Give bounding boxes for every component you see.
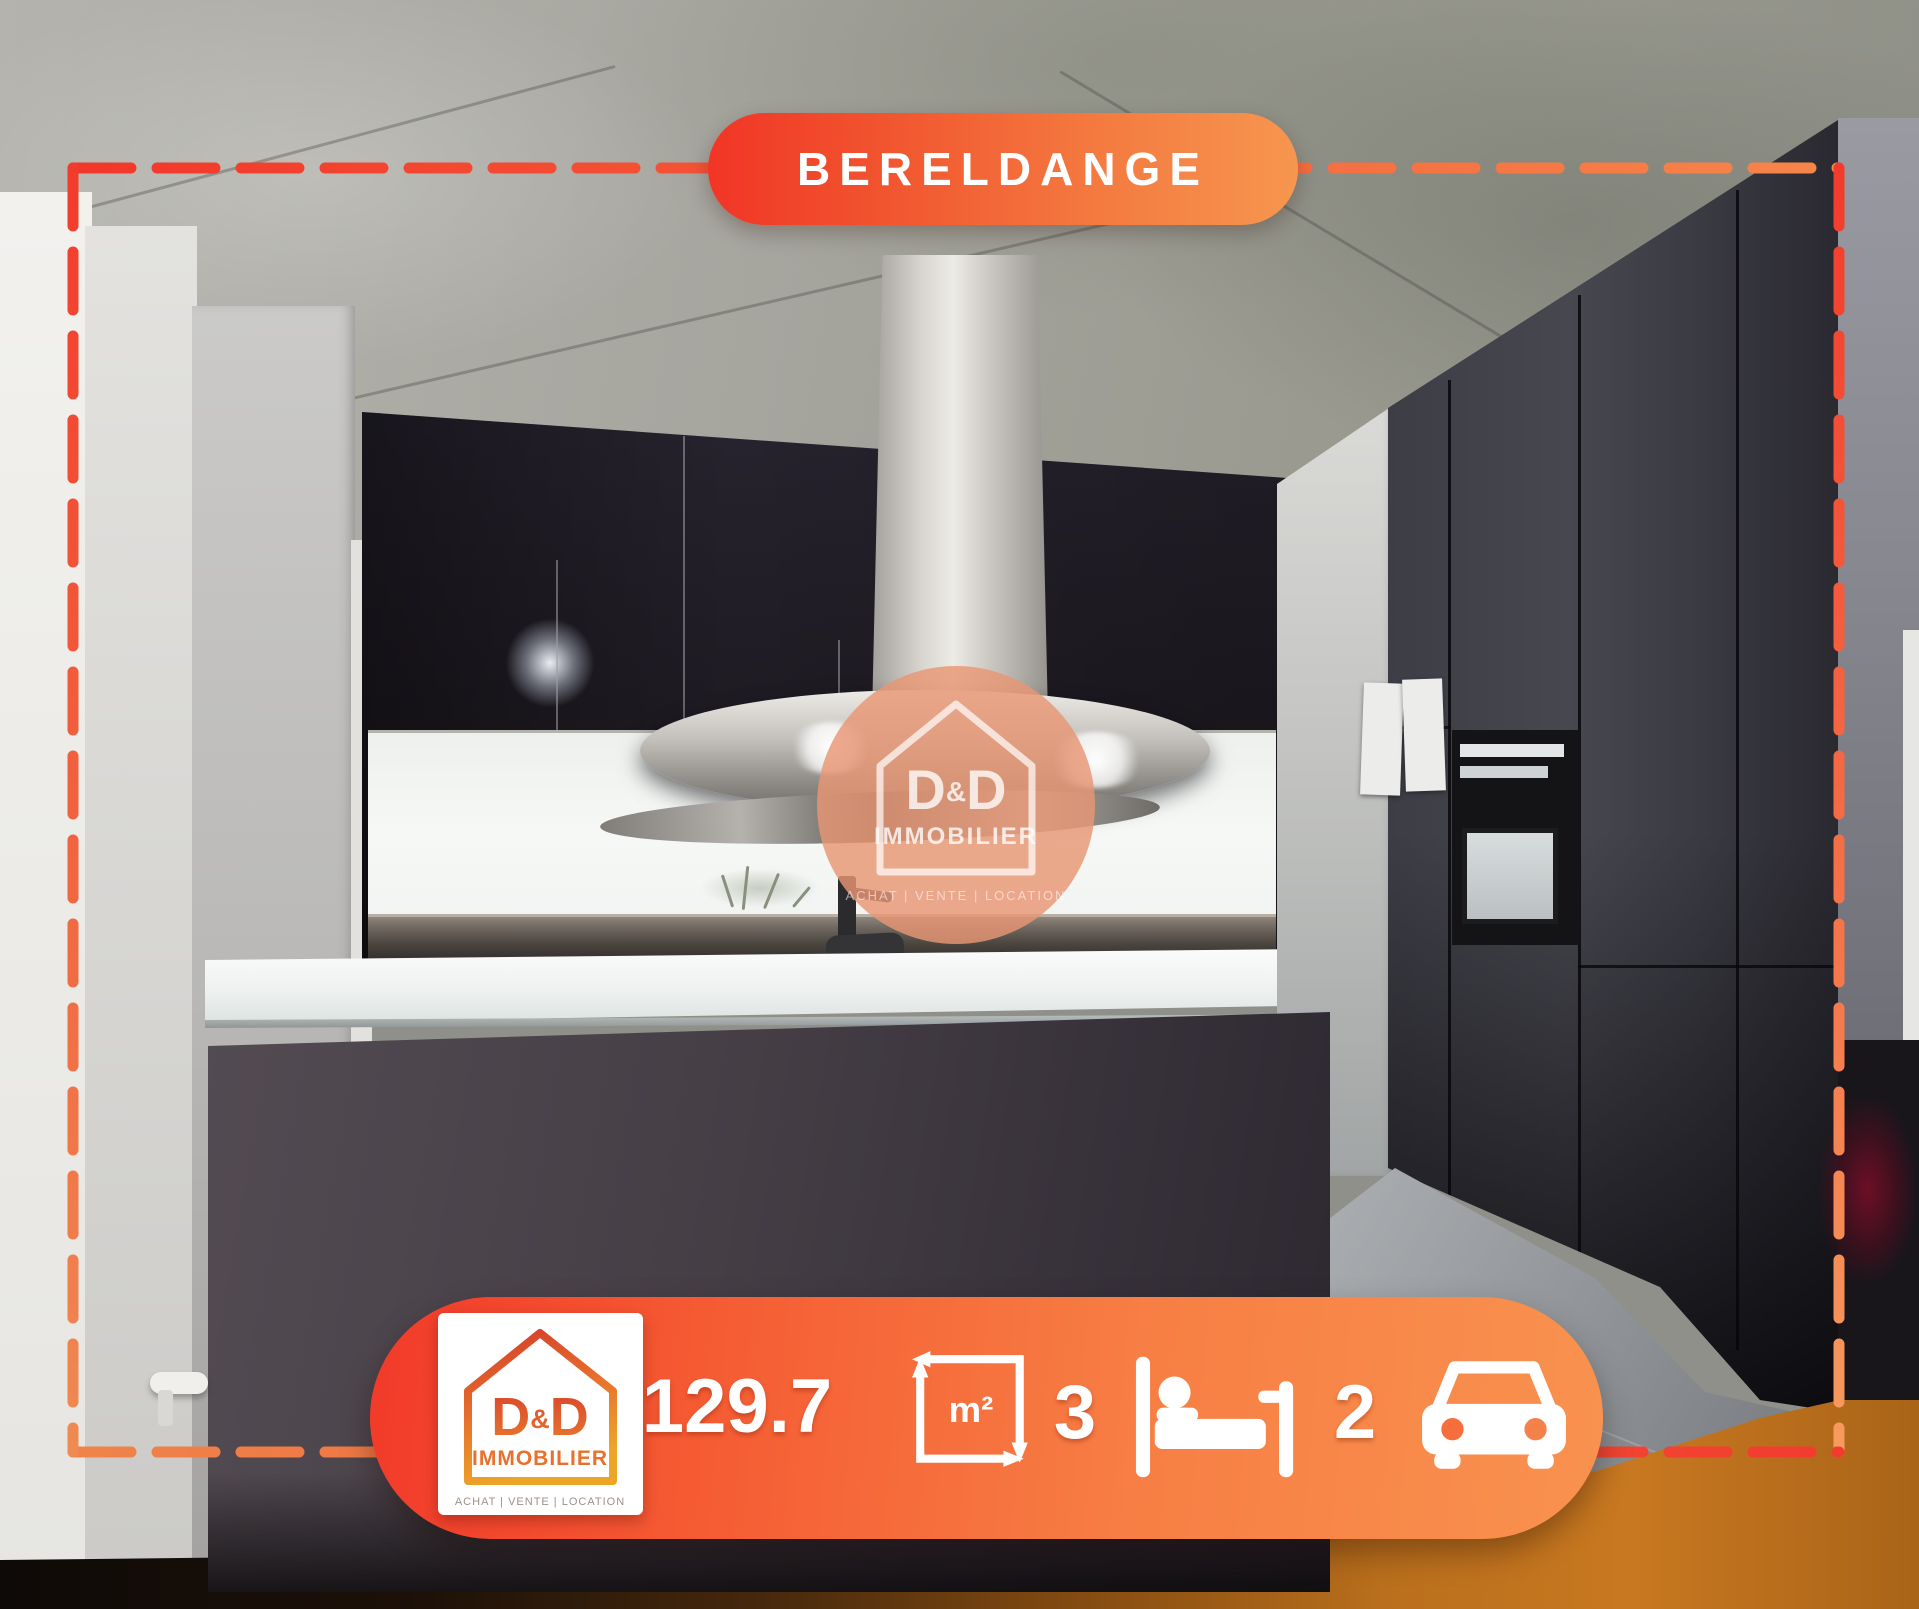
- watermark-brand: D&D: [905, 758, 1006, 821]
- watermark-logo: D&D IMMOBILIER ACHAT | VENTE | LOCATION: [817, 666, 1095, 944]
- bed-icon: [1130, 1353, 1300, 1481]
- area-value: 129.7: [592, 1369, 882, 1445]
- car-icon: [1418, 1351, 1570, 1477]
- watermark-subtitle: IMMOBILIER: [874, 823, 1038, 850]
- logo-tagline: ACHAT | VENTE | LOCATION: [455, 1496, 625, 1508]
- area-unit: m²: [949, 1389, 994, 1430]
- location-label: BERELDANGE: [797, 142, 1209, 196]
- logo-subtitle: IMMOBILIER: [472, 1447, 608, 1470]
- measure-area-icon: m²: [906, 1345, 1038, 1477]
- listing-promo-image: BERELDANGE D&D IMMOBILIER ACHAT | VENTE …: [0, 0, 1919, 1609]
- agency-watermark: D&D IMMOBILIER ACHAT | VENTE | LOCATION: [817, 666, 1095, 944]
- logo-brand: D&D: [491, 1387, 589, 1447]
- parking-value: 2: [1320, 1375, 1390, 1451]
- bedrooms-value: 3: [1040, 1375, 1110, 1451]
- location-badge: BERELDANGE: [708, 113, 1298, 225]
- watermark-tagline: ACHAT | VENTE | LOCATION: [846, 888, 1067, 903]
- stats-bar: D&D IMMOBILIER ACHAT | VENTE | LOCATION …: [370, 1297, 1603, 1539]
